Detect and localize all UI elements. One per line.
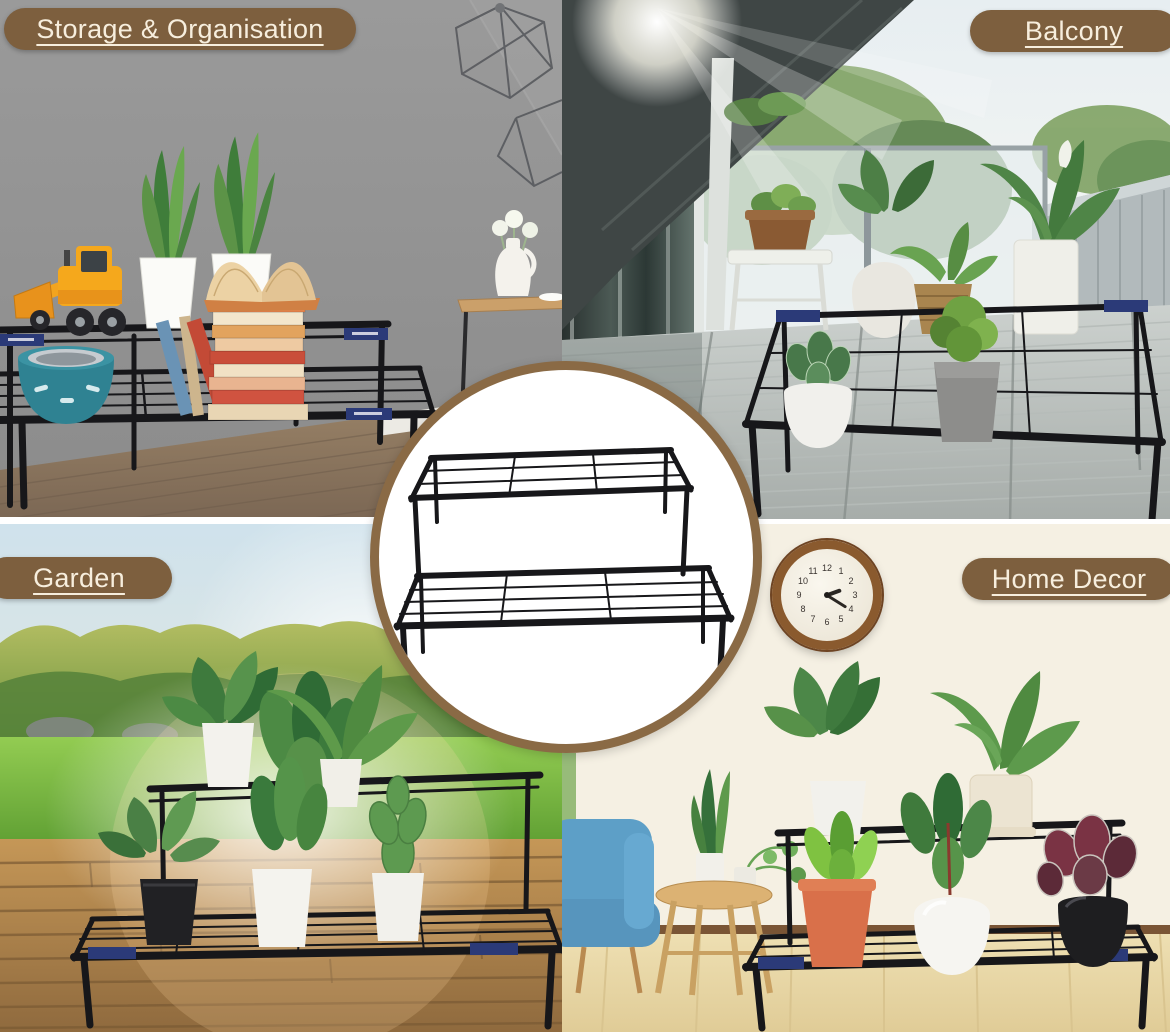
category-label-text: Storage & Organisation — [36, 14, 323, 45]
clock-numeral: 5 — [838, 614, 843, 624]
stand-lower — [397, 568, 731, 704]
category-label-text: Balcony — [1025, 16, 1123, 47]
peperomia-pot — [782, 331, 855, 448]
category-label-home-decor: Home Decor — [962, 558, 1170, 600]
clock-numeral: 2 — [848, 576, 853, 586]
clock-numeral: 10 — [798, 576, 808, 586]
product-inset-circle — [370, 361, 762, 753]
clock-numeral: 7 — [810, 614, 815, 624]
clock-numeral: 3 — [852, 590, 857, 600]
brand-label — [758, 957, 804, 969]
clock-center — [824, 592, 830, 598]
wall-clock: 12 1 2 3 4 5 6 7 8 9 10 11 — [772, 540, 882, 650]
brand-label — [470, 943, 518, 955]
category-label-balcony: Balcony — [970, 10, 1170, 52]
category-label-storage: Storage & Organisation — [4, 8, 356, 50]
product-plant-stands — [379, 370, 753, 744]
clock-numeral: 11 — [808, 566, 817, 576]
clock-numeral: 6 — [824, 617, 829, 627]
clock-numeral: 8 — [800, 604, 805, 614]
clock-numeral: 12 — [822, 563, 832, 573]
clock-numeral: 1 — [838, 566, 843, 576]
category-label-text: Garden — [33, 563, 125, 594]
stand-upper — [411, 450, 691, 580]
brand-label — [1104, 300, 1148, 312]
category-label-text: Home Decor — [992, 564, 1147, 595]
product-collage: 12 1 2 3 4 5 6 7 8 9 10 11 Storage & Org… — [0, 0, 1170, 1032]
brand-label — [776, 310, 820, 322]
clock-numeral: 9 — [796, 590, 801, 600]
category-label-garden: Garden — [0, 557, 172, 599]
brand-label — [88, 947, 136, 959]
clock-numeral: 4 — [848, 604, 853, 614]
